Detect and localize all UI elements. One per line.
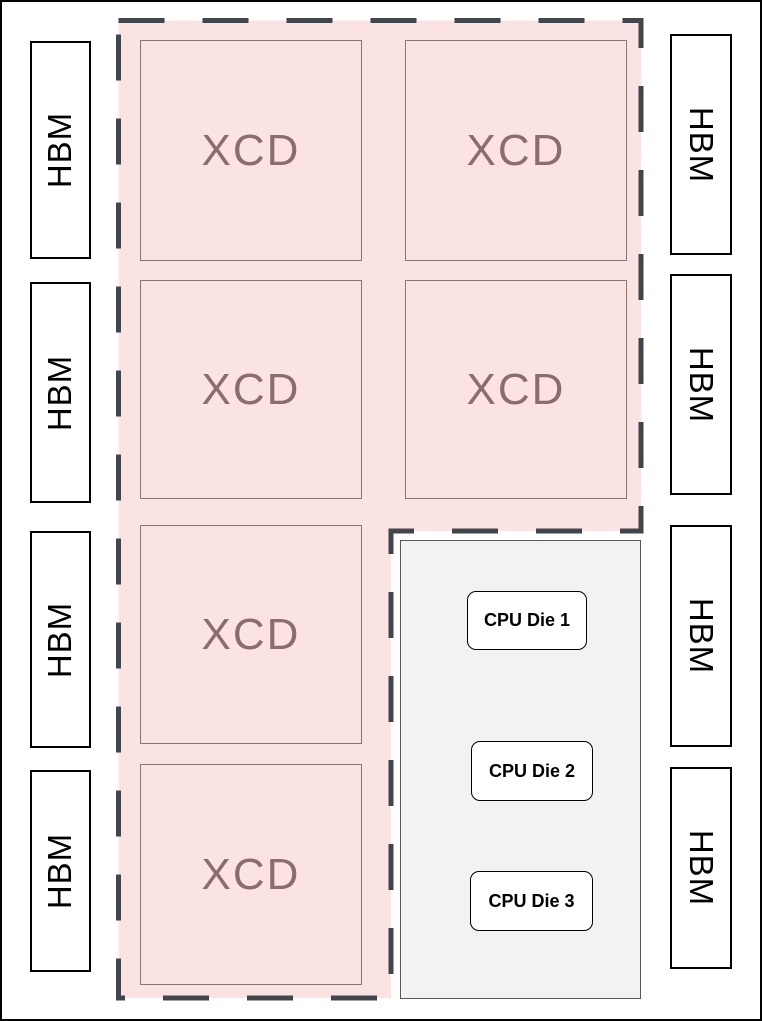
xcd-6-label: XCD <box>202 850 301 900</box>
hbm-left-3-label: HBM <box>42 601 80 677</box>
hbm-left-2-label: HBM <box>42 354 80 430</box>
chip-diagram: HBM HBM HBM HBM HBM HBM HBM HBM XCD XCD … <box>0 0 762 1021</box>
xcd-1: XCD <box>140 40 362 261</box>
xcd-3: XCD <box>140 280 362 499</box>
xcd-6: XCD <box>140 764 362 985</box>
cpu-die-2: CPU Die 2 <box>471 741 593 801</box>
gpu-region <box>2 2 760 1019</box>
cpu-die-3: CPU Die 3 <box>470 871 593 931</box>
cpu-die-1-label: CPU Die 1 <box>484 610 570 631</box>
xcd-4-label: XCD <box>467 365 566 415</box>
hbm-left-4-label: HBM <box>42 833 80 909</box>
xcd-1-label: XCD <box>202 126 301 176</box>
xcd-2: XCD <box>405 40 627 261</box>
xcd-5: XCD <box>140 525 362 744</box>
cpu-region: CPU Die 1 CPU Die 2 CPU Die 3 <box>400 540 641 999</box>
hbm-right-3-label: HBM <box>682 598 720 674</box>
cpu-die-1: CPU Die 1 <box>467 591 587 650</box>
hbm-left-1-label: HBM <box>42 112 80 188</box>
hbm-right-3: HBM <box>670 525 732 747</box>
hbm-right-4-label: HBM <box>682 830 720 906</box>
xcd-4: XCD <box>405 280 627 499</box>
xcd-5-label: XCD <box>202 610 301 660</box>
xcd-3-label: XCD <box>202 365 301 415</box>
hbm-left-3: HBM <box>30 531 91 748</box>
hbm-right-2-label: HBM <box>682 346 720 422</box>
hbm-left-4: HBM <box>30 770 91 972</box>
hbm-right-1-label: HBM <box>682 106 720 182</box>
cpu-die-3-label: CPU Die 3 <box>488 891 574 912</box>
hbm-right-1: HBM <box>670 34 732 255</box>
hbm-right-2: HBM <box>670 274 732 495</box>
xcd-2-label: XCD <box>467 126 566 176</box>
cpu-die-2-label: CPU Die 2 <box>489 761 575 782</box>
hbm-right-4: HBM <box>670 767 732 969</box>
hbm-left-2: HBM <box>30 282 91 503</box>
hbm-left-1: HBM <box>30 41 91 259</box>
